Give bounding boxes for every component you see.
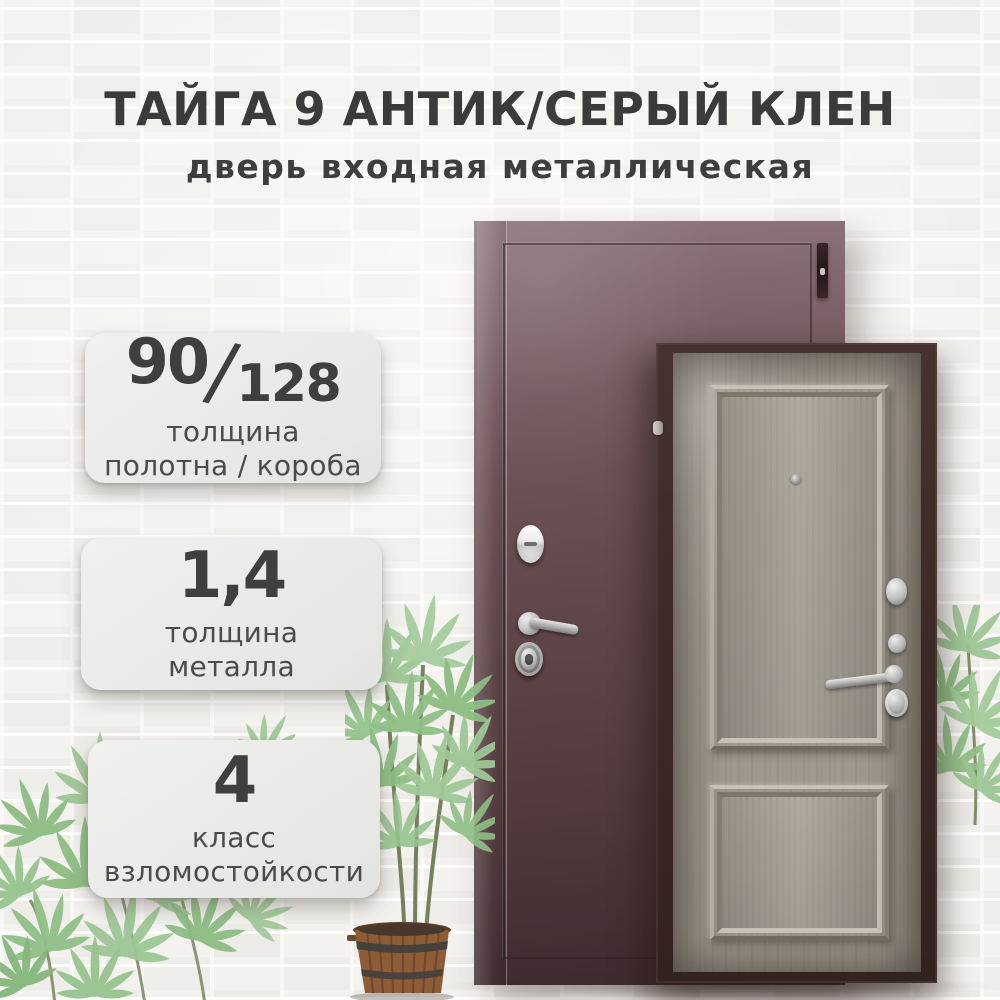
frame-thickness-value: 128 <box>236 358 340 410</box>
badge-leaf-frame-thickness: 90 / 128 толщина полотна / короба <box>85 333 381 483</box>
badge-label-line1: толщина <box>166 415 299 449</box>
badge-label-line2: металла <box>168 650 295 684</box>
metal-thickness-value: 1,4 <box>178 544 285 608</box>
product-subtitle: дверь входная металлическая <box>0 147 1000 186</box>
leaf-thickness-value: 90 <box>126 331 208 393</box>
product-card: ТАЙГА 9 АНТИК/СЕРЫЙ КЛЕН дверь входная м… <box>0 0 1000 1000</box>
badge-label-line1: толщина <box>165 616 298 650</box>
badge-metal-thickness: 1,4 толщина металла <box>81 538 382 690</box>
badge-label-line2: взломостойкости <box>104 855 364 889</box>
badge-label-line1: класс <box>192 821 276 855</box>
product-title: ТАЙГА 9 АНТИК/СЕРЫЙ КЛЕН <box>0 82 1000 136</box>
resistance-class-value: 4 <box>213 749 256 813</box>
badge-value: 90 / 128 <box>126 333 341 411</box>
badge-label-line2: полотна / короба <box>104 449 362 483</box>
badge-burglary-resistance: 4 класс взломостойкости <box>88 740 380 898</box>
